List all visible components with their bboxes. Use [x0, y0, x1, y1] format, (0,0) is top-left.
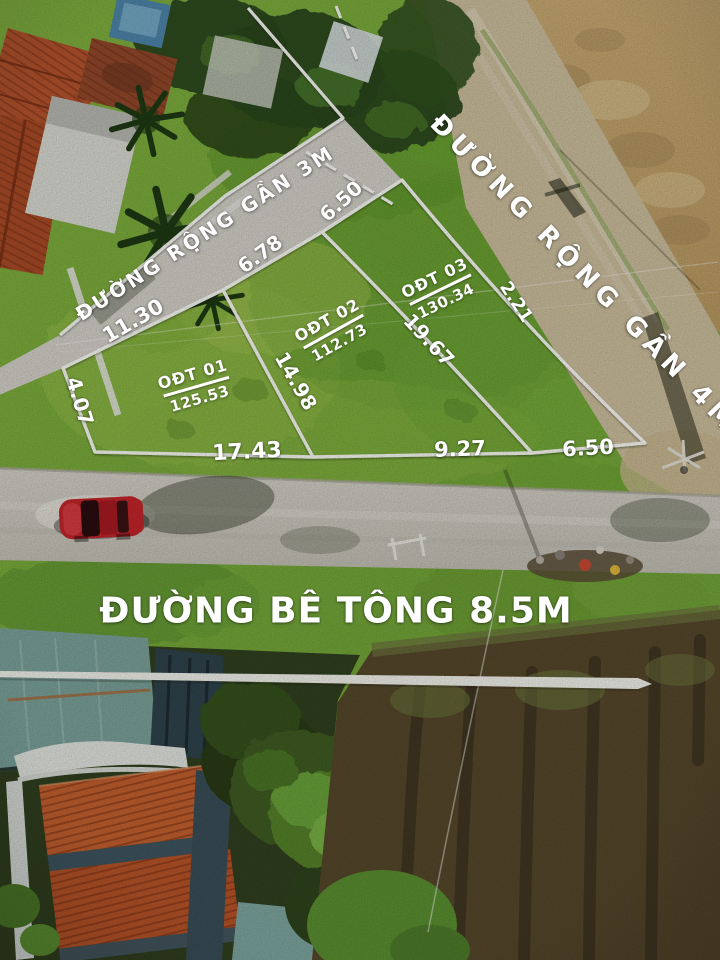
measurement-left: 4.07	[61, 374, 98, 428]
measurement-top-3: 6.50	[315, 176, 368, 227]
measurement-right: 2.21	[495, 278, 537, 327]
measurement-bottom-1: 17.43	[212, 438, 283, 467]
measurement-bottom-2: 9.27	[434, 436, 487, 462]
plot-label-1: OĐT 01 125.53	[156, 355, 237, 417]
aerial-land-plot-photo: ĐƯỜNG RỘNG GẦN 3M ĐƯỜNG RỘNG GẦN 4M ĐƯỜN…	[0, 0, 720, 960]
road-concrete-label: ĐƯỜNG BÊ TÔNG 8.5M	[99, 591, 572, 632]
annotation-labels: ĐƯỜNG RỘNG GẦN 3M ĐƯỜNG RỘNG GẦN 4M ĐƯỜN…	[0, 0, 720, 960]
measurement-top-2: 6.78	[233, 230, 287, 278]
measurement-bottom-3: 6.50	[561, 435, 614, 462]
plot-label-2: OĐT 02 112.73	[291, 295, 375, 368]
road-3m-label: ĐƯỜNG RỘNG GẦN 3M	[71, 140, 339, 326]
